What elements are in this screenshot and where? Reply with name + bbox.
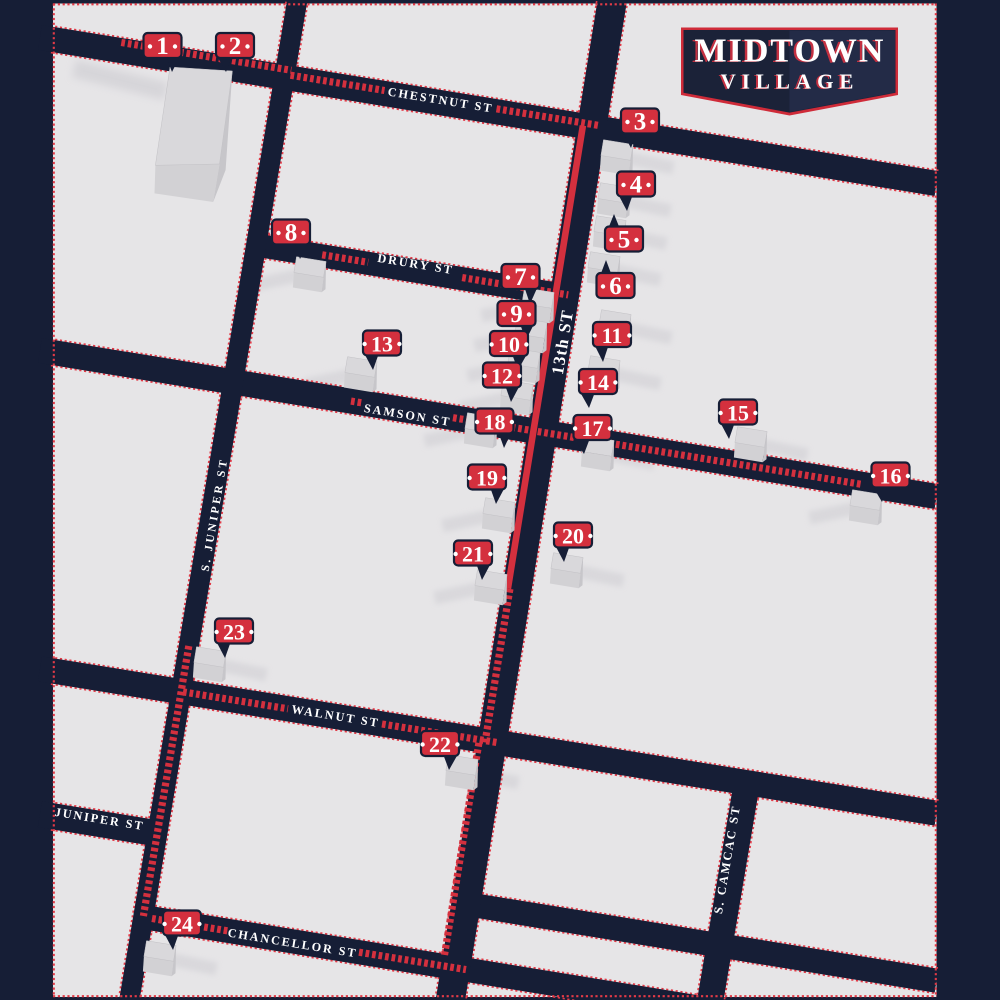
svg-text:11: 11 — [602, 323, 623, 348]
svg-text:14: 14 — [587, 370, 609, 395]
svg-text:15: 15 — [727, 401, 749, 426]
svg-text:4: 4 — [630, 172, 643, 199]
svg-text:2: 2 — [229, 33, 242, 60]
svg-text:5: 5 — [618, 227, 631, 254]
svg-text:3: 3 — [634, 109, 647, 136]
svg-text:18: 18 — [484, 410, 506, 435]
svg-text:9: 9 — [510, 301, 523, 328]
svg-text:21: 21 — [462, 542, 484, 567]
svg-text:10: 10 — [498, 332, 520, 357]
svg-text:22: 22 — [429, 732, 451, 757]
svg-text:17: 17 — [582, 416, 604, 441]
svg-text:13: 13 — [371, 332, 393, 357]
svg-text:24: 24 — [171, 912, 193, 937]
svg-text:MIDTOWN: MIDTOWN — [695, 33, 886, 70]
svg-text:1: 1 — [156, 33, 169, 60]
svg-text:8: 8 — [285, 220, 298, 247]
svg-text:16: 16 — [880, 464, 902, 489]
svg-text:19: 19 — [476, 466, 498, 491]
svg-text:VILLAGE: VILLAGE — [721, 70, 860, 94]
svg-text:7: 7 — [514, 264, 527, 291]
svg-text:12: 12 — [491, 364, 513, 389]
svg-text:6: 6 — [609, 273, 622, 300]
svg-text:20: 20 — [562, 524, 584, 549]
svg-text:23: 23 — [223, 620, 245, 645]
